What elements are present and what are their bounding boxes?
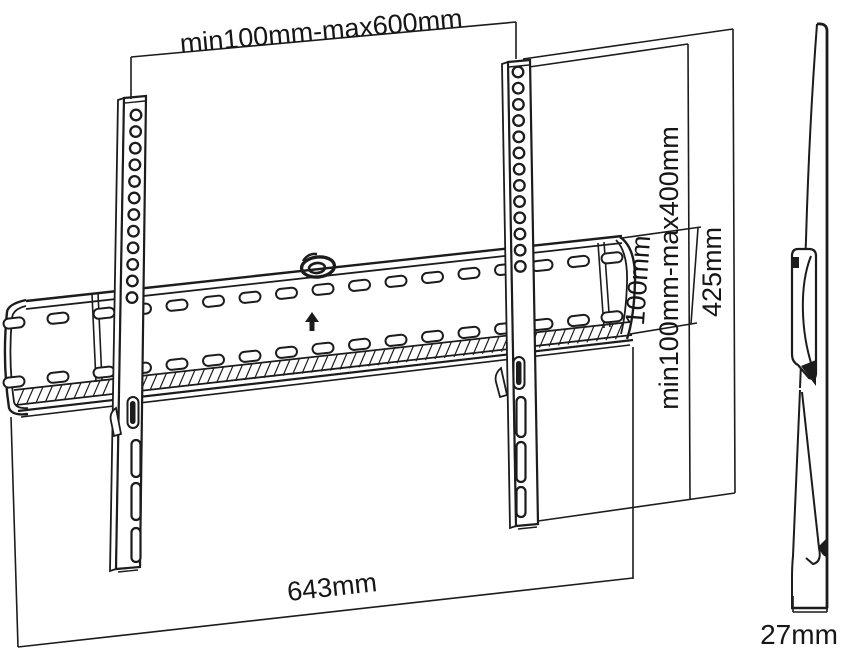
rail-hole bbox=[129, 209, 140, 220]
rail-hole bbox=[130, 160, 141, 171]
rail-hole bbox=[127, 259, 138, 270]
rail-hole bbox=[514, 196, 525, 207]
plate-slot bbox=[239, 350, 261, 362]
dim-label-vesa-width: min100mm-max600mm bbox=[179, 3, 464, 59]
rail-hole bbox=[129, 193, 140, 204]
plate-slot bbox=[3, 317, 25, 329]
plate-slot bbox=[312, 342, 334, 354]
plate-slot bbox=[276, 287, 298, 299]
side-view-group bbox=[791, 24, 828, 608]
right-rail-hook-tab bbox=[496, 368, 507, 397]
rail-slot bbox=[517, 397, 526, 437]
rail-hole bbox=[129, 176, 140, 187]
rail-hole bbox=[513, 99, 524, 110]
rail-hole bbox=[127, 292, 138, 303]
rail-hole bbox=[515, 261, 526, 272]
plate-slot bbox=[93, 366, 115, 378]
rail-hole bbox=[128, 226, 139, 237]
plate-slot bbox=[93, 307, 115, 319]
plate-slot bbox=[349, 279, 371, 291]
dim-label-vesa-height: min100mm-max400mm bbox=[654, 126, 684, 410]
plate-slot bbox=[422, 330, 444, 342]
rail-hole bbox=[130, 126, 141, 137]
plate-slot bbox=[422, 271, 444, 283]
dim-label-profile-depth: 27mm bbox=[760, 619, 838, 650]
right-rail-slots bbox=[517, 397, 526, 517]
rail-hole bbox=[513, 83, 524, 94]
rail-slot bbox=[132, 483, 141, 520]
rail-slot bbox=[517, 442, 526, 482]
rail-hole bbox=[515, 245, 526, 256]
plate-slot bbox=[239, 291, 261, 303]
rail-hole bbox=[513, 67, 524, 78]
rail-hole bbox=[130, 143, 141, 154]
rail-slot bbox=[132, 528, 141, 562]
plate-slot bbox=[166, 358, 188, 370]
rail-hole bbox=[128, 243, 139, 254]
plate-slot bbox=[166, 299, 188, 311]
plate-slot bbox=[385, 275, 407, 287]
plate-slot bbox=[385, 334, 407, 346]
plate-slot bbox=[3, 376, 25, 388]
dim-vesa-width: min100mm-max600mm bbox=[131, 3, 516, 99]
side-rail-profile bbox=[792, 249, 816, 386]
rail-hole bbox=[514, 180, 525, 191]
plate-slot bbox=[276, 346, 298, 358]
left-vesa-rail bbox=[110, 96, 146, 572]
plate-slot bbox=[568, 314, 590, 326]
plate-slot bbox=[203, 354, 225, 366]
rail-hole bbox=[514, 213, 525, 224]
wall-mount-technical-drawing: min100mm-max600mm 100mm min100mm-max400m… bbox=[0, 0, 841, 653]
rail-hole bbox=[513, 115, 524, 126]
dim-label-bracket-height: 425mm bbox=[697, 227, 727, 317]
wall-plate bbox=[3, 236, 635, 417]
plate-slot bbox=[349, 338, 371, 350]
rail-hole bbox=[514, 148, 525, 159]
front-view-group bbox=[3, 60, 635, 572]
rail-slot bbox=[517, 487, 526, 517]
rail-hole bbox=[513, 132, 524, 143]
plate-slot bbox=[601, 252, 623, 264]
plate-slot bbox=[458, 267, 480, 279]
rail-hole bbox=[131, 110, 142, 121]
plate-slot bbox=[47, 371, 69, 383]
left-rail-slots bbox=[132, 440, 141, 562]
plate-slot bbox=[568, 255, 590, 267]
rail-hole bbox=[127, 276, 138, 287]
plate-slot bbox=[312, 283, 334, 295]
plate-slot bbox=[458, 326, 480, 338]
plate-slot bbox=[47, 312, 69, 324]
rail-hole bbox=[514, 164, 525, 175]
rail-hole bbox=[515, 229, 526, 240]
rail-slot bbox=[132, 440, 141, 477]
dim-label-plate-width: 643mm bbox=[286, 567, 379, 607]
dim-label-plate-height: 100mm bbox=[620, 234, 656, 326]
plate-slot bbox=[203, 295, 225, 307]
